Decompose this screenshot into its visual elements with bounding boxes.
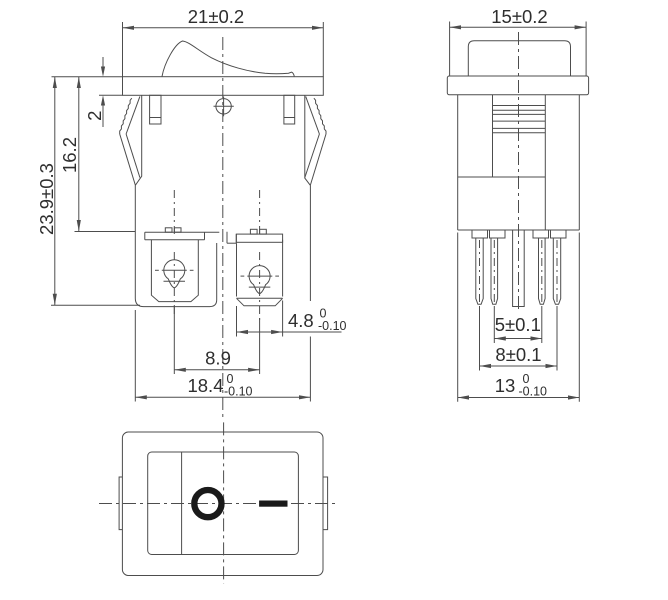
- svg-text:21±0.2: 21±0.2: [188, 6, 244, 27]
- svg-text:18.4: 18.4: [187, 375, 223, 396]
- svg-text:15±0.2: 15±0.2: [491, 6, 547, 27]
- svg-text:16.2: 16.2: [59, 137, 80, 173]
- svg-text:8±0.1: 8±0.1: [495, 344, 541, 365]
- svg-text:13: 13: [495, 375, 516, 396]
- svg-text:2: 2: [84, 111, 105, 121]
- svg-text:23.9±0.3: 23.9±0.3: [36, 163, 57, 235]
- svg-text:5±0.1: 5±0.1: [495, 314, 541, 335]
- svg-text:-0.10: -0.10: [224, 384, 253, 398]
- svg-text:-0.10: -0.10: [318, 319, 347, 333]
- svg-text:-0.10: -0.10: [519, 384, 548, 398]
- svg-text:4.8: 4.8: [288, 310, 314, 331]
- svg-text:8.9: 8.9: [205, 347, 231, 368]
